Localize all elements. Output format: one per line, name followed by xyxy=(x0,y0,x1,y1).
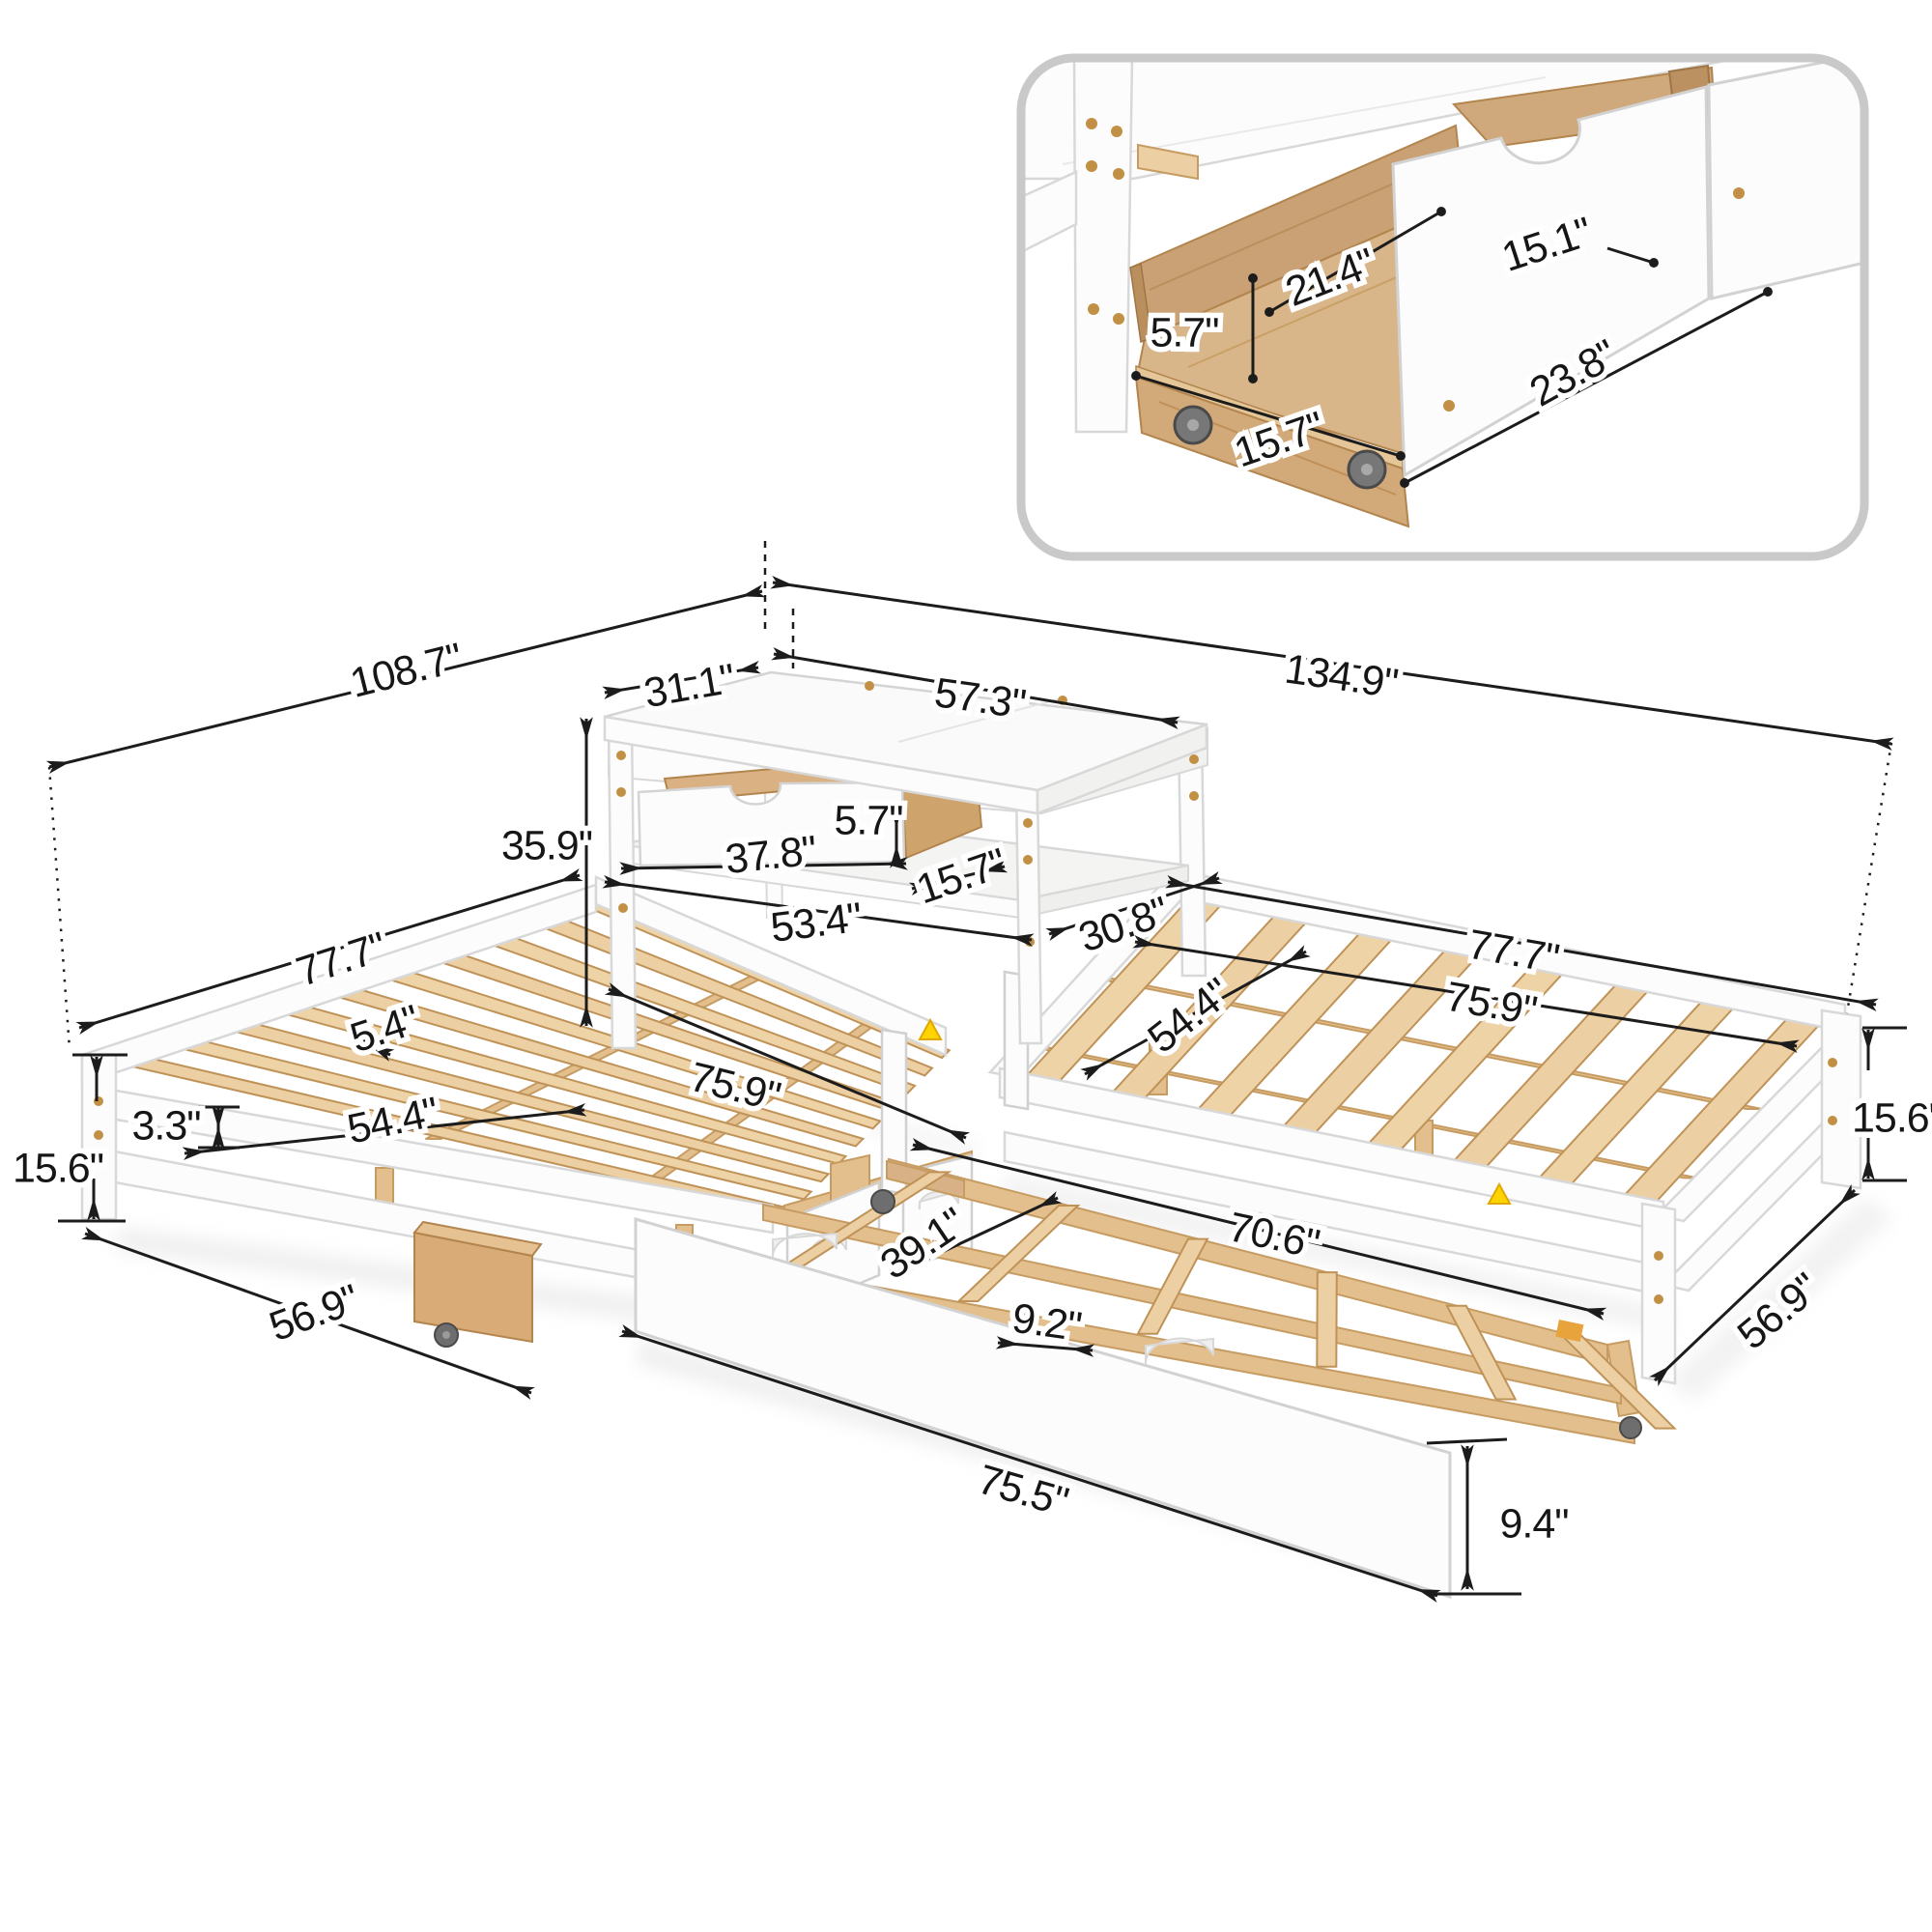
svg-text:15.6": 15.6" xyxy=(13,1145,103,1191)
svg-text:3.3": 3.3" xyxy=(131,1102,200,1149)
svg-text:37.8": 37.8" xyxy=(723,828,817,884)
svg-text:35.9": 35.9" xyxy=(501,822,592,868)
svg-text:9.4": 9.4" xyxy=(1499,1500,1568,1547)
svg-text:15.6": 15.6" xyxy=(1852,1094,1932,1141)
svg-text:5.7": 5.7" xyxy=(1150,309,1218,355)
svg-text:9.2": 9.2" xyxy=(1009,1295,1084,1350)
svg-text:5.7": 5.7" xyxy=(834,797,902,843)
